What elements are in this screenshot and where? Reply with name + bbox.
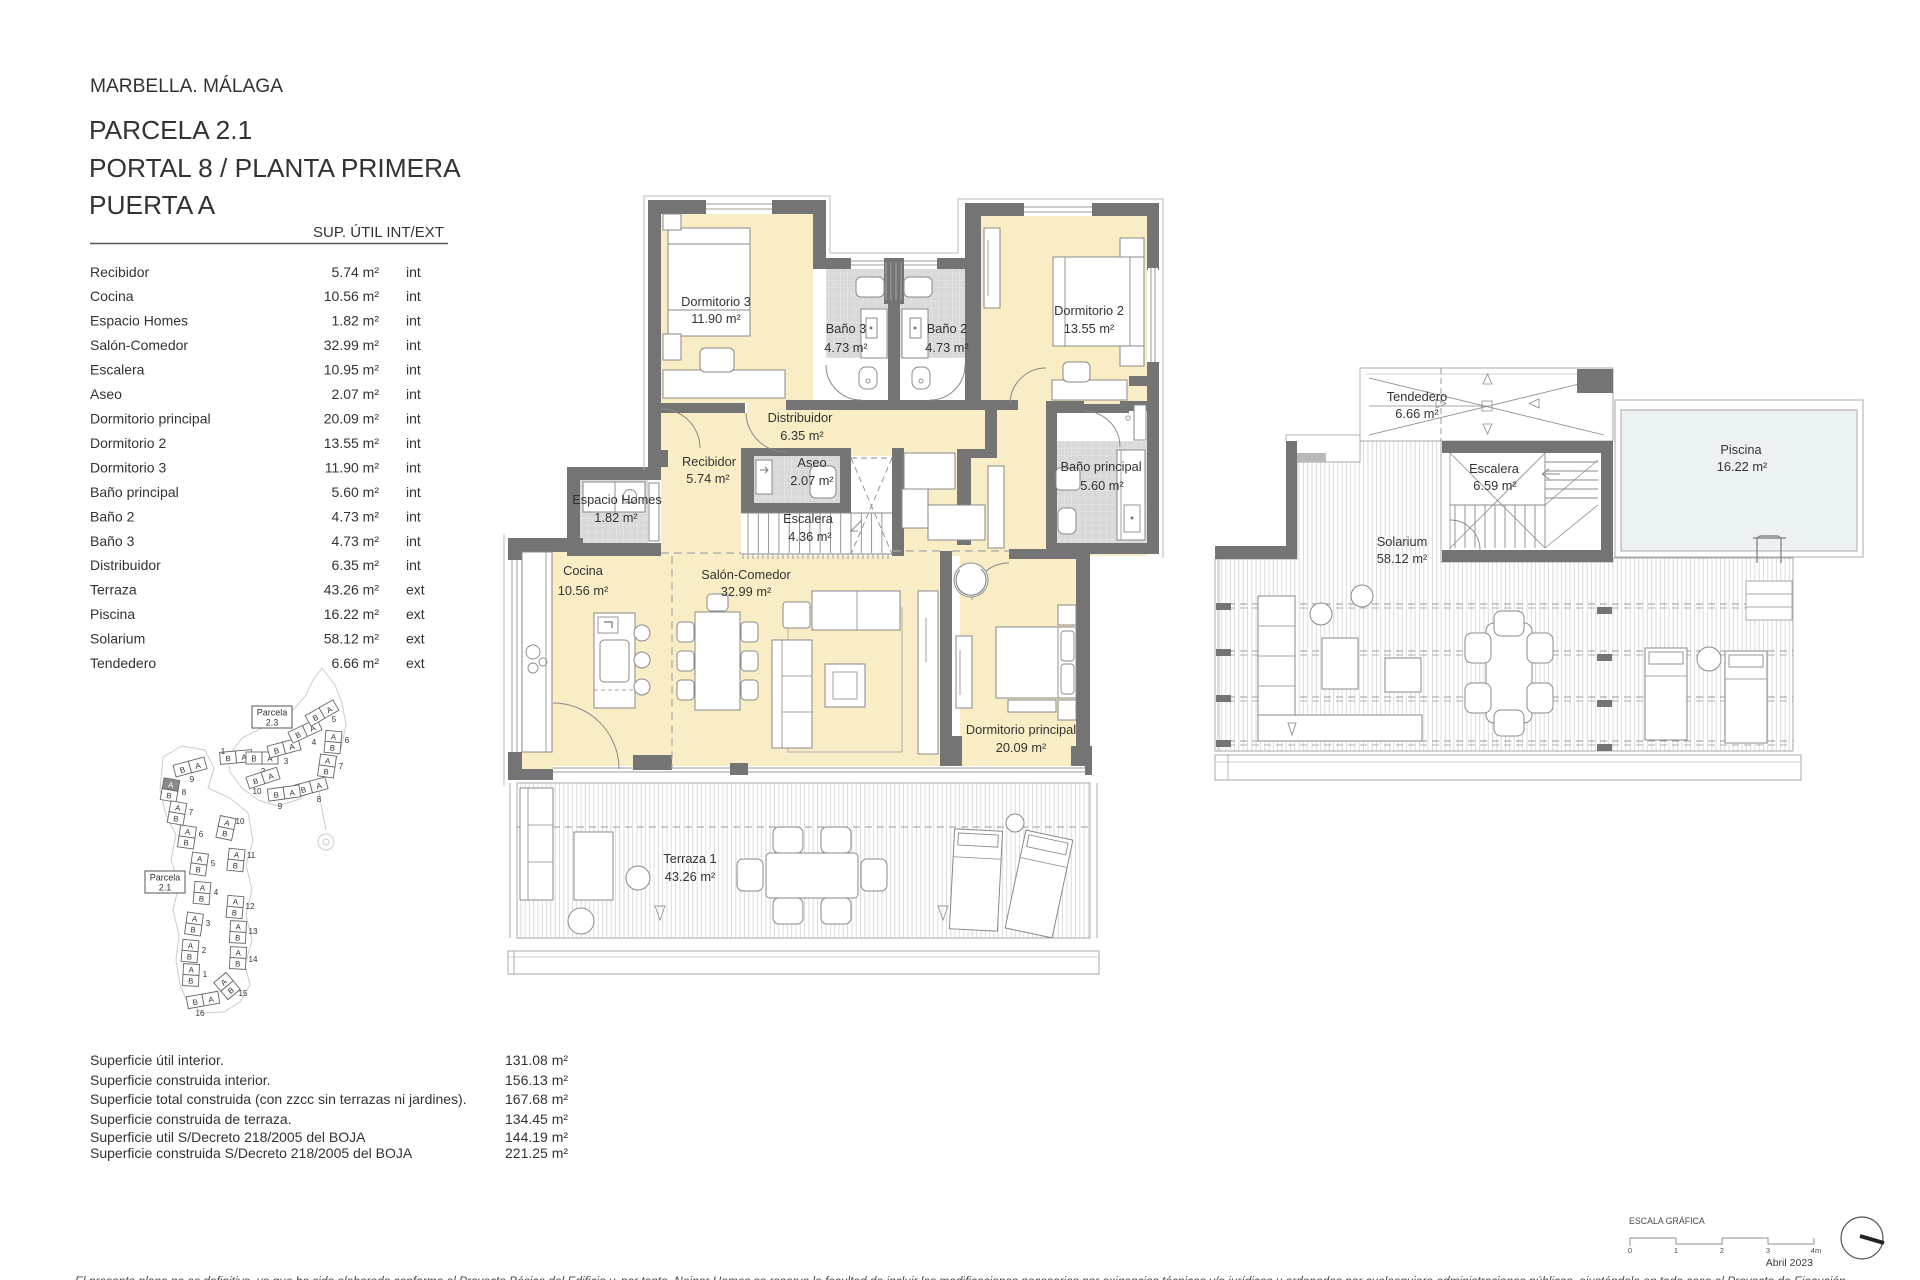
svg-text:8: 8 (182, 788, 187, 797)
svg-text:Dormitorio principal: Dormitorio principal (90, 411, 211, 427)
svg-text:Parcela: Parcela (257, 708, 288, 718)
svg-text:4m: 4m (1811, 1246, 1821, 1255)
svg-text:Superficie construida interior: Superficie construida interior. (90, 1072, 271, 1088)
svg-text:6.59 m²: 6.59 m² (1473, 478, 1517, 493)
svg-text:Dormitorio 2: Dormitorio 2 (1054, 303, 1124, 318)
svg-text:Superficie construida S/Decret: Superficie construida S/Decreto 218/2005… (90, 1145, 413, 1161)
svg-text:2.3: 2.3 (266, 718, 279, 728)
svg-text:20.09 m²: 20.09 m² (324, 411, 380, 427)
svg-text:131.08 m²: 131.08 m² (505, 1052, 568, 1068)
svg-text:1.82 m²: 1.82 m² (332, 313, 380, 329)
svg-text:Tendedero: Tendedero (90, 655, 156, 671)
svg-text:2.1: 2.1 (159, 883, 172, 893)
svg-text:4.73 m²: 4.73 m² (332, 508, 380, 524)
svg-text:int: int (406, 484, 421, 500)
svg-text:int: int (406, 362, 421, 378)
svg-text:Solarium: Solarium (90, 631, 145, 647)
svg-text:9: 9 (190, 775, 195, 784)
svg-text:0: 0 (1628, 1246, 1632, 1255)
svg-text:16: 16 (196, 1009, 205, 1018)
svg-text:Dormitorio principal: Dormitorio principal (966, 722, 1076, 737)
svg-text:12: 12 (246, 902, 255, 911)
svg-text:13.55 m²: 13.55 m² (1064, 321, 1115, 336)
svg-text:SUP. ÚTIL INT/EXT: SUP. ÚTIL INT/EXT (313, 224, 444, 241)
svg-text:5.74 m²: 5.74 m² (332, 264, 380, 280)
svg-text:Baño principal: Baño principal (1060, 459, 1141, 474)
svg-text:Terraza 1: Terraza 1 (663, 851, 716, 866)
svg-text:Piscina: Piscina (1720, 442, 1762, 457)
svg-text:6: 6 (199, 830, 204, 839)
svg-text:Salón-Comedor: Salón-Comedor (701, 567, 791, 582)
svg-text:Distribuidor: Distribuidor (90, 557, 161, 573)
svg-text:2: 2 (202, 946, 207, 955)
svg-text:7: 7 (339, 762, 344, 771)
svg-text:58.12 m²: 58.12 m² (1377, 551, 1428, 566)
svg-text:B: B (235, 959, 241, 968)
svg-text:ext: ext (406, 655, 425, 671)
svg-text:14: 14 (249, 955, 258, 964)
svg-text:Dormitorio 3: Dormitorio 3 (90, 459, 166, 475)
svg-text:Baño 2: Baño 2 (90, 508, 135, 524)
svg-text:4: 4 (312, 738, 317, 747)
svg-text:B: B (231, 908, 237, 917)
svg-text:int: int (406, 435, 421, 451)
svg-text:Cocina: Cocina (90, 288, 134, 304)
svg-text:Dormitorio 2: Dormitorio 2 (90, 435, 166, 451)
svg-text:Escalera: Escalera (90, 362, 145, 378)
svg-text:1: 1 (1674, 1246, 1678, 1255)
svg-text:4.36 m²: 4.36 m² (788, 529, 832, 544)
svg-text:int: int (406, 386, 421, 402)
svg-text:6.35 m²: 6.35 m² (332, 557, 380, 573)
svg-text:58.12 m²: 58.12 m² (324, 631, 380, 647)
svg-text:int: int (406, 337, 421, 353)
svg-text:13.55 m²: 13.55 m² (324, 435, 380, 451)
svg-text:3: 3 (284, 757, 289, 766)
svg-text:B: B (188, 976, 194, 985)
svg-text:Cocina: Cocina (563, 563, 604, 578)
svg-text:5: 5 (211, 859, 216, 868)
svg-text:4: 4 (214, 888, 219, 897)
svg-text:int: int (406, 264, 421, 280)
svg-text:B: B (235, 933, 241, 942)
svg-text:5.74 m²: 5.74 m² (686, 471, 730, 486)
svg-text:156.13 m²: 156.13 m² (505, 1072, 568, 1088)
svg-text:1.82 m²: 1.82 m² (594, 510, 638, 525)
svg-text:Escalera: Escalera (783, 511, 834, 526)
svg-text:11.90 m²: 11.90 m² (691, 311, 741, 326)
svg-text:2: 2 (1720, 1246, 1724, 1255)
svg-text:Aseo: Aseo (797, 455, 826, 470)
svg-text:1: 1 (203, 970, 208, 979)
svg-text:3: 3 (1766, 1246, 1770, 1255)
svg-text:6.35 m²: 6.35 m² (780, 428, 824, 443)
svg-text:Espacio Homes: Espacio Homes (572, 492, 662, 507)
svg-text:134.45 m²: 134.45 m² (505, 1111, 568, 1127)
svg-text:Tendedero: Tendedero (1387, 389, 1447, 404)
svg-text:Superficie construida de terra: Superficie construida de terraza. (90, 1111, 292, 1127)
svg-text:1: 1 (221, 747, 226, 756)
svg-text:167.68 m²: 167.68 m² (505, 1091, 568, 1107)
svg-text:B: B (225, 754, 231, 763)
svg-text:Espacio Homes: Espacio Homes (90, 313, 188, 329)
svg-text:3: 3 (206, 919, 211, 928)
svg-text:43.26 m²: 43.26 m² (665, 869, 716, 884)
svg-text:int: int (406, 288, 421, 304)
svg-text:int: int (406, 533, 421, 549)
svg-text:16.22 m²: 16.22 m² (1717, 459, 1768, 474)
svg-text:144.19 m²: 144.19 m² (505, 1129, 568, 1145)
svg-text:PARCELA 2.1: PARCELA 2.1 (89, 115, 252, 145)
svg-text:Superficie útil interior.: Superficie útil interior. (90, 1052, 224, 1068)
svg-text:5.60 m²: 5.60 m² (1080, 478, 1124, 493)
svg-text:4.73 m²: 4.73 m² (925, 340, 969, 355)
svg-text:10: 10 (253, 787, 262, 796)
svg-text:Superficie total construida (c: Superficie total construida (con zzcc si… (90, 1091, 467, 1107)
svg-text:Salón-Comedor: Salón-Comedor (90, 337, 188, 353)
svg-text:32.99 m²: 32.99 m² (721, 584, 772, 599)
svg-text:PORTAL 8 / PLANTA PRIMERA: PORTAL 8 / PLANTA PRIMERA (89, 153, 461, 183)
svg-text:6.66 m²: 6.66 m² (1395, 406, 1439, 421)
svg-text:6.66 m²: 6.66 m² (332, 655, 380, 671)
svg-text:Baño 2: Baño 2 (927, 321, 968, 336)
svg-text:ext: ext (406, 606, 425, 622)
svg-text:B: B (329, 743, 335, 752)
svg-text:El presente plano no es defini: El presente plano no es definitivo, ya q… (75, 1274, 1849, 1280)
svg-text:Terraza: Terraza (90, 582, 137, 598)
svg-text:16.22 m²: 16.22 m² (324, 606, 380, 622)
svg-text:B: B (198, 894, 204, 903)
svg-text:B: B (186, 952, 192, 961)
svg-text:Superficie util S/Decreto 218/: Superficie util S/Decreto 218/2005 del B… (90, 1129, 366, 1145)
svg-text:Dormitorio 3: Dormitorio 3 (681, 294, 751, 309)
svg-text:5: 5 (332, 715, 337, 724)
svg-text:8: 8 (317, 795, 322, 804)
svg-text:MARBELLA. MÁLAGA: MARBELLA. MÁLAGA (90, 76, 283, 97)
svg-text:15: 15 (239, 989, 248, 998)
svg-text:Solarium: Solarium (1377, 534, 1428, 549)
svg-text:13: 13 (249, 927, 258, 936)
svg-text:43.26 m²: 43.26 m² (324, 582, 380, 598)
svg-text:Aseo: Aseo (90, 386, 122, 402)
svg-text:int: int (406, 313, 421, 329)
svg-text:Distribuidor: Distribuidor (768, 410, 833, 425)
svg-text:B: B (232, 861, 238, 870)
svg-text:4.73 m²: 4.73 m² (824, 340, 868, 355)
svg-text:10: 10 (236, 817, 245, 826)
svg-text:5.60 m²: 5.60 m² (332, 484, 380, 500)
svg-text:9: 9 (278, 802, 283, 811)
svg-text:7: 7 (189, 808, 194, 817)
svg-text:4.73 m²: 4.73 m² (332, 533, 380, 549)
svg-text:Abril 2023: Abril 2023 (1766, 1257, 1813, 1269)
svg-text:11: 11 (247, 851, 256, 860)
svg-text:PUERTA A: PUERTA A (89, 190, 216, 220)
svg-text:11.90 m²: 11.90 m² (325, 459, 380, 475)
svg-text:ext: ext (406, 582, 425, 598)
svg-text:32.99 m²: 32.99 m² (324, 337, 380, 353)
svg-text:10.56 m²: 10.56 m² (558, 583, 609, 598)
svg-text:Piscina: Piscina (90, 606, 135, 622)
svg-text:int: int (406, 459, 421, 475)
svg-text:ESCALA GRÁFICA: ESCALA GRÁFICA (1629, 1216, 1705, 1226)
svg-text:20.09 m²: 20.09 m² (996, 740, 1047, 755)
svg-text:B: B (251, 755, 256, 764)
svg-text:Parcela: Parcela (150, 873, 181, 883)
svg-text:10.56 m²: 10.56 m² (324, 288, 380, 304)
svg-text:221.25 m²: 221.25 m² (505, 1145, 568, 1161)
svg-text:ext: ext (406, 631, 425, 647)
svg-text:2.07 m²: 2.07 m² (332, 386, 380, 402)
svg-text:2.07 m²: 2.07 m² (790, 473, 834, 488)
svg-text:int: int (406, 411, 421, 427)
svg-text:10.95 m²: 10.95 m² (324, 362, 380, 378)
svg-text:Baño principal: Baño principal (90, 484, 179, 500)
svg-text:int: int (406, 508, 421, 524)
svg-text:Recibidor: Recibidor (90, 264, 149, 280)
svg-text:Baño 3: Baño 3 (826, 321, 867, 336)
svg-text:6: 6 (345, 736, 350, 745)
svg-text:Escalera: Escalera (1469, 461, 1520, 476)
svg-text:int: int (406, 557, 421, 573)
svg-text:Baño 3: Baño 3 (90, 533, 135, 549)
svg-text:Recibidor: Recibidor (682, 454, 737, 469)
